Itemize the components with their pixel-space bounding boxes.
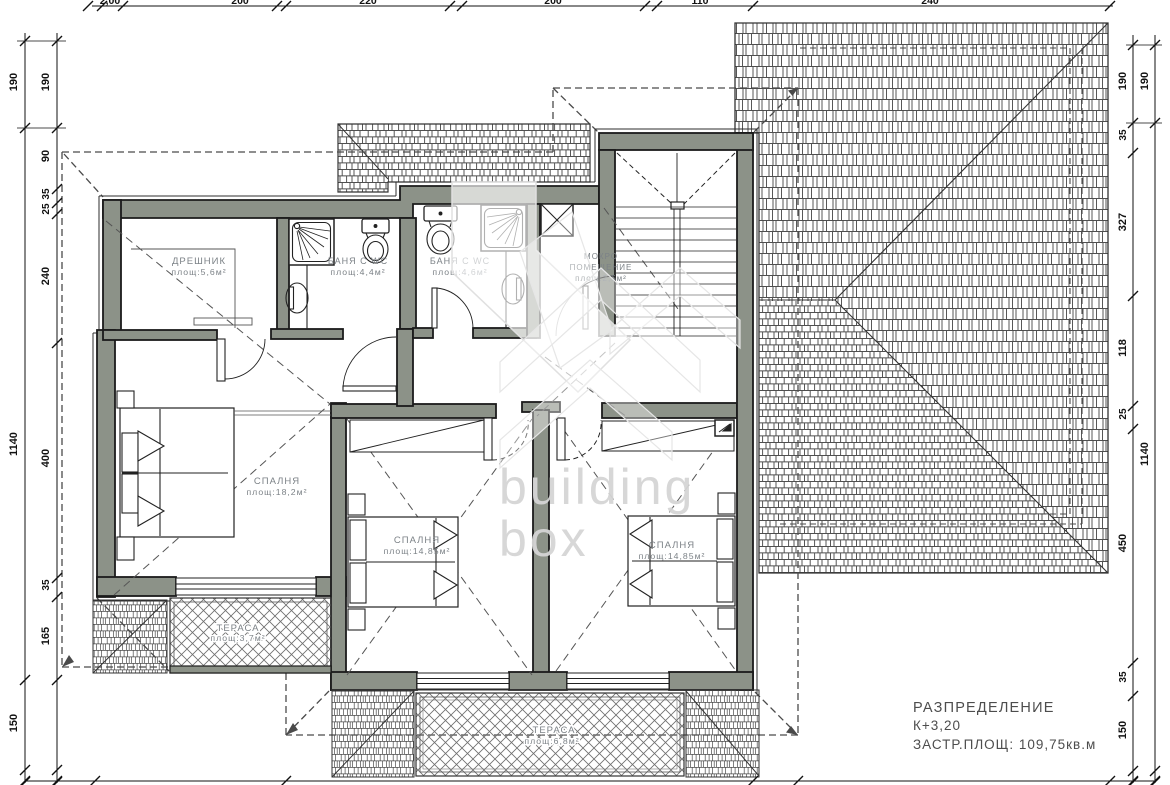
svg-text:450: 450 — [1117, 534, 1129, 552]
svg-text:1140: 1140 — [8, 432, 20, 456]
svg-text:110: 110 — [692, 0, 709, 7]
svg-text:БАНЯ С WC: БАНЯ С WC — [328, 256, 388, 266]
svg-text:327: 327 — [1117, 213, 1129, 231]
svg-text:118: 118 — [1117, 339, 1129, 357]
svg-text:25: 25 — [1118, 408, 1129, 420]
svg-text:building: building — [499, 459, 695, 515]
svg-text:СПАЛНЯ: СПАЛНЯ — [394, 535, 440, 546]
svg-text:165: 165 — [40, 627, 52, 645]
svg-text:площ:18,2м²: площ:18,2м² — [246, 487, 307, 497]
svg-text:35: 35 — [41, 188, 52, 200]
svg-text:150: 150 — [8, 714, 20, 732]
svg-text:площ:4,4м²: площ:4,4м² — [330, 267, 385, 277]
svg-text:площ:5,6м²: площ:5,6м² — [171, 267, 226, 277]
svg-text:400: 400 — [40, 449, 52, 467]
svg-text:35: 35 — [1118, 129, 1129, 141]
svg-text:240: 240 — [921, 0, 939, 7]
svg-text:200: 200 — [544, 0, 562, 7]
svg-text:200: 200 — [231, 0, 249, 7]
svg-text:СПАЛНЯ: СПАЛНЯ — [649, 540, 695, 551]
svg-text:190: 190 — [8, 73, 20, 91]
svg-text:150: 150 — [1117, 721, 1129, 739]
svg-text:35: 35 — [1118, 671, 1129, 683]
svg-text:РАЗПРЕДЕЛЕНИЕ: РАЗПРЕДЕЛЕНИЕ — [913, 700, 1055, 716]
svg-text:площ:14,85м²: площ:14,85м² — [384, 546, 451, 556]
svg-text:190: 190 — [1117, 72, 1129, 90]
svg-text:190: 190 — [1139, 72, 1151, 90]
svg-text:190: 190 — [40, 73, 52, 91]
svg-text:площ:3,7м²: площ:3,7м² — [210, 633, 265, 643]
svg-text:СПАЛНЯ: СПАЛНЯ — [254, 476, 300, 487]
svg-text:box: box — [499, 511, 589, 567]
svg-text:К+3,20: К+3,20 — [913, 718, 961, 733]
svg-text:220: 220 — [359, 0, 377, 7]
svg-text:площ:6,8м²: площ:6,8м² — [524, 736, 579, 746]
svg-text:МОКРО: МОКРО — [584, 252, 618, 261]
svg-text:2,00: 2,00 — [100, 0, 121, 7]
svg-text:90: 90 — [40, 150, 52, 162]
svg-text:площ:14,85м²: площ:14,85м² — [639, 551, 706, 561]
svg-text:ТЕРАСА: ТЕРАСА — [533, 725, 576, 736]
svg-text:1140: 1140 — [1139, 442, 1151, 466]
svg-text:35: 35 — [41, 579, 52, 591]
svg-text:ДРЕШНИК: ДРЕШНИК — [172, 256, 226, 267]
svg-text:25: 25 — [41, 203, 52, 215]
svg-text:ЗАСТР.ПЛОЩ: 109,75кв.м: ЗАСТР.ПЛОЩ: 109,75кв.м — [913, 737, 1096, 752]
svg-text:240: 240 — [40, 267, 52, 285]
